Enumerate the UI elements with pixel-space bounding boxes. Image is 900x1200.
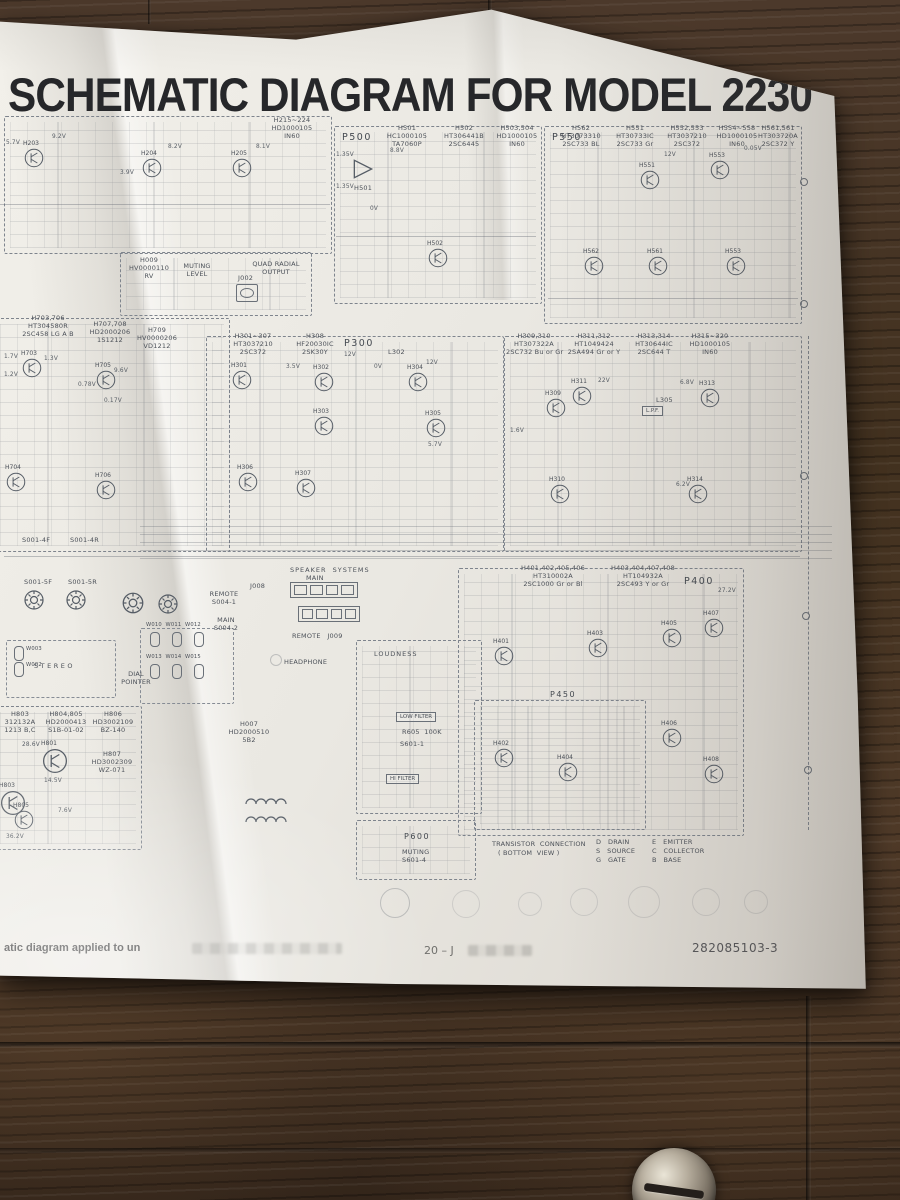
part-table: H403,404,407,408HT104932A2SC493 Y or Gr (600, 564, 686, 588)
transistor-icon (232, 370, 252, 390)
faded-text-smudge (468, 945, 532, 956)
transistor-ref: H404 (557, 754, 573, 761)
voltage-label: 0.78V (78, 382, 96, 389)
part-table: H554~558HD1000105IN60 (714, 124, 760, 148)
transistor-icon (96, 370, 116, 390)
transistor-ref: H703 (21, 350, 37, 357)
part-table: H308HF20030IC2SK30Y (286, 332, 344, 356)
part-table: H301~307HT30372102SC372 (224, 332, 282, 356)
connector-dot (802, 612, 810, 620)
lamp-icon (194, 632, 204, 647)
transistor-symbol: H706 (96, 480, 116, 500)
voltage-label: 14.5V (44, 778, 62, 785)
jack-ref: REMOTE J009 (292, 632, 343, 640)
voltage-label: 8.1V (256, 144, 270, 151)
jack-ref: J002 (238, 274, 253, 282)
rotary-switch-icon (156, 592, 180, 616)
transistor-symbol: H309 (546, 398, 566, 418)
switch-ref: S001-5R (68, 578, 97, 586)
transistor-icon (42, 748, 68, 774)
legend-title: TRANSISTOR CONNECTION (492, 840, 586, 848)
transistor-symbol: H314 (688, 484, 708, 504)
transistor-icon (648, 256, 668, 276)
voltage-label: 1.7V (4, 354, 18, 361)
voltage-label: 3.9V (120, 170, 134, 177)
section-label: QUAD RADIALOUTPUT (248, 260, 304, 276)
switch-ref: S601-1 (400, 740, 424, 748)
section-label: SPEAKER SYSTEMS (290, 566, 370, 574)
legend-pin: C COLLECTOR (652, 847, 704, 855)
pinout-circle (570, 888, 598, 916)
lpf-label: L.P.F. (642, 406, 663, 416)
lamp-icon (194, 664, 204, 679)
voltage-label: 27.2V (718, 588, 736, 595)
transistor-ref: H310 (549, 476, 565, 483)
transistor-icon (494, 748, 514, 768)
lamp-row-label: W010 W011 W012 (146, 622, 201, 629)
footer-note: atic diagram applied to un (4, 942, 140, 954)
legend-pin: S SOURCE (596, 847, 635, 855)
faded-text-smudge (192, 943, 342, 954)
pinout-circle (744, 890, 768, 914)
transistor-symbol: H310 (550, 484, 570, 504)
transistor-symbol: H203 (24, 148, 44, 168)
transistor-symbol: H302 (314, 372, 334, 392)
block-name: P400 (684, 576, 714, 587)
transistor-ref: H553 (709, 152, 725, 159)
page-number: 20 – J (424, 944, 454, 957)
transistor-symbol: H401 (494, 646, 514, 666)
transistor-ref: H304 (407, 364, 423, 371)
transistor-symbol: H313 (700, 388, 720, 408)
transistor-icon (14, 810, 34, 830)
connector-dot (804, 766, 812, 774)
transistor-symbol: H204 (142, 158, 162, 178)
part-table: H503,504HD1000105IN60 (494, 124, 540, 148)
transistor-icon (584, 256, 604, 276)
transistor-icon (726, 256, 746, 276)
transistor-ref: H407 (703, 610, 719, 617)
hi-filter-label: HI FILTER (386, 774, 419, 784)
voltage-label: 9.2V (52, 134, 66, 141)
voltage-label: 5.7V (428, 442, 442, 449)
pinout-circle (692, 888, 720, 916)
block-name: P500 (342, 132, 372, 143)
transistor-ref: H706 (95, 472, 111, 479)
schematic-paper: SCHEMATIC DIAGRAM FOR MODEL 2230 (0, 0, 900, 1200)
voltage-label: 7.6V (58, 808, 72, 815)
transistor-symbol: H705 (96, 370, 116, 390)
voltage-label: 0V (374, 364, 382, 371)
lamp-icon (172, 664, 182, 679)
transistor-ref: H309 (545, 390, 561, 397)
transistor-ref: H305 (425, 410, 441, 417)
voltage-label: 28.6V (22, 742, 40, 749)
transistor-ref: H705 (95, 362, 111, 369)
wire-line (4, 556, 800, 557)
headphone-label: HEADPHONE (284, 658, 327, 666)
lamp-icon (172, 632, 182, 647)
transistor-symbol: H406 (662, 728, 682, 748)
transistor-symbol: H704 (6, 472, 26, 492)
transistor-icon (546, 398, 566, 418)
transistor-symbol: H502 (428, 248, 448, 268)
part-table: H803312132A1213 B,C (0, 710, 40, 734)
voltage-label: 0.05V (744, 146, 762, 153)
transistor-ref: H402 (493, 740, 509, 747)
part-table: H502HT306441B2SC6445 (436, 124, 492, 148)
transistor-symbol: H407 (704, 618, 724, 638)
wire-line (808, 336, 809, 830)
voltage-label: 1.6V (510, 428, 524, 435)
transistor-icon (704, 764, 724, 784)
block-name: P600 (404, 832, 430, 841)
transistor-ref: H501 (354, 184, 372, 192)
transistor-symbol: H311 (572, 386, 592, 406)
legend-subtitle: ( BOTTOM VIEW ) (498, 849, 559, 857)
transistor-icon (704, 618, 724, 638)
transistor-ref: H408 (703, 756, 719, 763)
voltage-label: 12V (426, 360, 438, 367)
voltage-label: 12V (664, 152, 676, 159)
transistor-icon (142, 158, 162, 178)
pinout-circle (518, 892, 542, 916)
lamp-icon (14, 662, 24, 677)
pinout-circle (628, 886, 660, 918)
transistor-ref: H303 (313, 408, 329, 415)
voltage-label: 36.2V (6, 834, 24, 841)
transistor-icon (314, 372, 334, 392)
transistor-icon (710, 160, 730, 180)
document-number: 282085103-3 (692, 941, 778, 955)
legend-pin: G GATE (596, 856, 626, 864)
voltage-label: 6.2V (676, 482, 690, 489)
jack-icon (270, 654, 282, 666)
connector-dot (800, 300, 808, 308)
voltage-label: 9.6V (114, 368, 128, 375)
transistor-icon (408, 372, 428, 392)
transistor-icon (428, 248, 448, 268)
transistor-icon (96, 480, 116, 500)
transistor-ref: H553 (725, 248, 741, 255)
switch-ref: S601-4 (402, 856, 426, 864)
transistor-symbol: H408 (704, 764, 724, 784)
transistor-symbol: H403 (588, 638, 608, 658)
photo-of-schematic: SCHEMATIC DIAGRAM FOR MODEL 2230 (0, 0, 900, 1200)
wire-line (336, 236, 536, 237)
connector-strip (298, 606, 360, 622)
part-table: H311,312HT10494242SA494 Gr or Y (564, 332, 624, 356)
part-table: H501HC1000105TA7060P (380, 124, 434, 148)
pinout-circle (452, 890, 480, 918)
transistor-icon (6, 472, 26, 492)
voltage-label: 12V (344, 352, 356, 359)
part-table: H807HD3002309WZ-071 (88, 750, 136, 774)
rotary-switch-icon (64, 588, 88, 612)
voltage-label: 22V (598, 378, 610, 385)
part-table: H806HD3002109BZ-140 (92, 710, 134, 734)
transistor-ref: H801 (41, 740, 57, 747)
transistor-ref: H307 (295, 470, 311, 477)
transistor-ref: H502 (427, 240, 443, 247)
transistor-ref: H406 (661, 720, 677, 727)
transistor-ref: H306 (237, 464, 253, 471)
transistor-symbol: H304 (408, 372, 428, 392)
wiring-bus (140, 526, 832, 560)
wire-line (548, 298, 798, 299)
jack-ref: J008 (250, 582, 265, 590)
section-label: MAIN (306, 574, 324, 582)
transistor-ref: H311 (571, 378, 587, 385)
transistor-ref: H551 (639, 162, 655, 169)
part-table: H804,805HD2000413S1B-01-02 (42, 710, 90, 734)
transistor-icon (700, 388, 720, 408)
voltage-label: 5.7V (6, 140, 20, 147)
transistor-symbol: H205 (232, 158, 252, 178)
transistor-ref: H403 (587, 630, 603, 637)
transistor-ref: H203 (23, 140, 39, 147)
resistor-ref: R605 100K (402, 728, 442, 736)
part-table: H401,402,405,406HT310002A2SC1000 Gr or B… (510, 564, 596, 588)
transistor-ref: H805 (13, 802, 29, 809)
page-title: SCHEMATIC DIAGRAM FOR MODEL 2230 (8, 67, 812, 122)
transistor-icon (426, 418, 446, 438)
part-table: H009HV0000110RV (126, 256, 172, 280)
section-label: MUTING (402, 848, 429, 856)
transistor-symbol: H305 (426, 418, 446, 438)
part-table: H313,314HT30644IC2SC644 T (626, 332, 682, 356)
coil-ref: L302 (388, 348, 405, 356)
block-p500 (334, 126, 542, 304)
block-filters (356, 640, 482, 814)
lamp-icon (14, 646, 24, 661)
transistor-ref: H204 (141, 150, 157, 157)
transistor-ref: H302 (313, 364, 329, 371)
voltage-label: 8.8V (390, 148, 404, 155)
switch-ref: S001-4F (22, 536, 50, 544)
transistor-ref: H405 (661, 620, 677, 627)
transistor-ref: H301 (231, 362, 247, 369)
connector-dot (800, 178, 808, 186)
transistor-symbol: H301 (232, 370, 252, 390)
section-label: MUTINGLEVEL (180, 262, 214, 278)
transistor-symbol: H553 (710, 160, 730, 180)
voltage-label: 1.35V (336, 152, 354, 159)
dial-pointer-label: DIALPOINTER (116, 670, 156, 686)
part-table: H709HV0000206VD1212 (130, 326, 184, 350)
transistor-symbol: H306 (238, 472, 258, 492)
transistor-symbol: H801 (42, 748, 62, 768)
voltage-label: 1.2V (4, 372, 18, 379)
transistor-ref: H313 (699, 380, 715, 387)
block-p300 (206, 336, 504, 552)
coil-icon (244, 812, 292, 824)
legend-pin: B BASE (652, 856, 681, 864)
section-label: LOUDNESS (374, 650, 418, 658)
transistor-symbol: H307 (296, 478, 316, 498)
transistor-symbol: H405 (662, 628, 682, 648)
legend-pin: E EMITTER (652, 838, 693, 846)
low-filter-label: LOW FILTER (396, 712, 436, 722)
transistor-icon (588, 638, 608, 658)
block-mpx (504, 336, 802, 552)
voltage-label: 0V (370, 206, 378, 213)
part-table: H562HT30733102SC733 BL (556, 124, 606, 148)
lamp-row-label: W013 W014 W015 (146, 654, 201, 661)
transistor-ref: H205 (231, 150, 247, 157)
paper-wrap: SCHEMATIC DIAGRAM FOR MODEL 2230 (0, 0, 900, 1200)
switch-ref: S001-5F (24, 578, 52, 586)
transistor-symbol: H402 (494, 748, 514, 768)
transistor-icon (22, 358, 42, 378)
transistor-icon (494, 646, 514, 666)
voltage-label: 8.2V (168, 144, 182, 151)
switch-label: MAINS004-2 (206, 616, 246, 632)
voltage-label: 1.35V (336, 184, 354, 191)
rotary-switch-icon (22, 588, 46, 612)
transistor-ref: H704 (5, 464, 21, 471)
connector-dot (800, 472, 808, 480)
part-table: H703,706HT304580R2SC458 LG A B (16, 314, 80, 338)
lamp-icon (150, 632, 160, 647)
wire-line (0, 204, 330, 205)
rotary-switch-icon (120, 590, 146, 616)
part-table: H561,561HT303720A2SC372 Y (756, 124, 800, 148)
transistor-symbol: H562 (584, 256, 604, 276)
voltage-label: 0.17V (104, 398, 122, 405)
transistor-icon (550, 484, 570, 504)
connector-strip (290, 582, 358, 598)
transistor-icon (24, 148, 44, 168)
switch-ref: S001-4R (70, 536, 99, 544)
transistor-icon (662, 628, 682, 648)
legend-pin: D DRAIN (596, 838, 630, 846)
part-table: H007HD20005105B2 (220, 720, 278, 744)
transistor-symbol: H703 (22, 358, 42, 378)
transistor-icon (296, 478, 316, 498)
jack-icon (236, 284, 258, 302)
block-name: P300 (344, 338, 374, 349)
block-name: P450 (550, 690, 576, 699)
transistor-icon (572, 386, 592, 406)
transistor-symbol: H404 (558, 762, 578, 782)
voltage-label: 6.8V (680, 380, 694, 387)
transistor-symbol: H561 (648, 256, 668, 276)
coil-icon (244, 794, 292, 806)
transistor-symbol: H551 (640, 170, 660, 190)
transistor-symbol: H553 (726, 256, 746, 276)
transistor-ref: H803 (0, 782, 15, 789)
transistor-icon (238, 472, 258, 492)
part-table: H215~224HD1000105IN60 (256, 116, 328, 140)
voltage-label: 3.5V (286, 364, 300, 371)
opamp-icon (350, 156, 376, 182)
lamp-ref: W003 (26, 646, 42, 653)
transistor-ref: H401 (493, 638, 509, 645)
pinout-circle (380, 888, 410, 918)
transistor-icon (232, 158, 252, 178)
lamp-ref: W002 (26, 662, 42, 669)
voltage-label: 1.3V (44, 356, 58, 363)
transistor-icon (640, 170, 660, 190)
transistor-icon (688, 484, 708, 504)
part-table: H309,310HT307322A2SC732 Bu or Gr (506, 332, 562, 356)
transistor-ref: H562 (583, 248, 599, 255)
transistor-ref: H561 (647, 248, 663, 255)
coil-ref: L305 (656, 396, 673, 404)
part-table: H552,553HT30372102SC372 (662, 124, 712, 148)
transistor-symbol: H805 (14, 810, 34, 830)
transistor-icon (314, 416, 334, 436)
switch-label: REMOTES004-1 (204, 590, 244, 606)
transistor-symbol: H303 (314, 416, 334, 436)
transistor-icon (662, 728, 682, 748)
part-table: H551HT30733IC2SC733 Gr (610, 124, 660, 148)
transistor-icon (558, 762, 578, 782)
part-table: H315~320HD1000105IN60 (684, 332, 736, 356)
